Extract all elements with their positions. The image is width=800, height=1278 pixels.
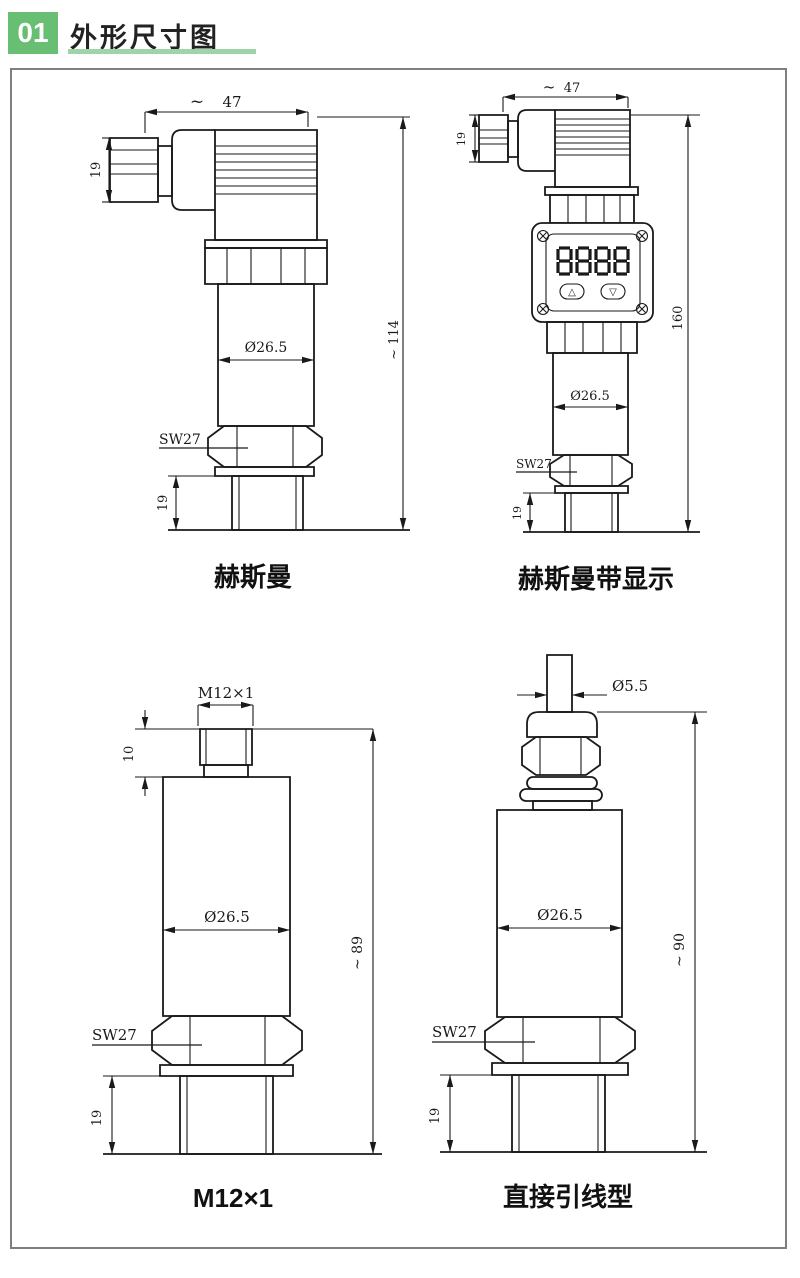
- d2-thread-text: 19: [511, 506, 524, 520]
- d2-housing: [518, 110, 630, 187]
- d1-dim-total-height: ~ 114: [317, 117, 410, 530]
- d3-wrench-text: SW27: [92, 1026, 137, 1044]
- d3-dim-diameter: Ø26.5: [163, 908, 290, 930]
- d2-wrench-note: SW27: [516, 457, 577, 472]
- d3-caption: M12×1: [193, 1183, 273, 1213]
- d2-dim-connector: 19: [455, 115, 479, 162]
- d2-dim-diameter: Ø26.5: [553, 389, 628, 407]
- d2-dim-width: ~ 47: [503, 78, 628, 112]
- d3-thread-text: 19: [90, 1110, 105, 1127]
- d1-wrench-text: SW27: [159, 432, 201, 448]
- d2-body: [553, 353, 628, 455]
- d2-diameter-text: Ø26.5: [570, 389, 610, 404]
- d2-dim-total-height: 160: [630, 115, 700, 532]
- d3-hex-nut: [152, 1016, 302, 1065]
- d3-dim-thread-spec: M12×1: [198, 684, 255, 726]
- d4-total-height-text: ~ 90: [672, 933, 688, 967]
- d1-hex-nut: [208, 426, 322, 467]
- d3-dim-connector: 10: [122, 710, 163, 796]
- d4-wrench-note: SW27: [432, 1023, 535, 1042]
- drawing-cable: Ø5.5 Ø26.5: [428, 655, 707, 1212]
- d3-dim-thread: 19: [90, 1076, 180, 1154]
- d2-hex-nut: [550, 455, 632, 486]
- drawing-hirschmann-display: △ ▽: [455, 78, 700, 594]
- d1-ribs: [215, 146, 317, 194]
- d1-approx-text: ~: [190, 92, 204, 112]
- d3-total-height-text: ~ 89: [350, 936, 366, 970]
- d2-display-module: △ ▽: [532, 223, 653, 322]
- d1-thread-text: 19: [156, 495, 171, 512]
- d4-caption: 直接引线型: [503, 1182, 633, 1212]
- d4-dim-thread: 19: [428, 1075, 512, 1152]
- d1-connector-text: 19: [89, 162, 104, 179]
- d4-thread-stud: [512, 1075, 605, 1152]
- d1-wrench-note: SW27: [159, 432, 248, 448]
- d2-washer: [555, 486, 628, 493]
- d1-width-text: 47: [222, 93, 241, 111]
- drawing-m12: M12×1 10 Ø26.5: [90, 684, 382, 1213]
- d2-ribs: [555, 119, 630, 155]
- d1-total-height-text: ~ 114: [387, 320, 402, 360]
- d2-dim-thread: 19: [511, 493, 565, 532]
- d1-washer: [215, 467, 314, 476]
- d2-button-down-glyph: ▽: [609, 287, 617, 298]
- d4-hex-nut: [485, 1017, 635, 1063]
- d3-washer: [160, 1065, 293, 1076]
- d1-dim-width: ~ 47: [145, 92, 308, 133]
- d2-total-height-text: 160: [671, 306, 686, 331]
- d4-cable-text: Ø5.5: [612, 677, 648, 695]
- d1-collar: [205, 240, 327, 284]
- d4-washer: [492, 1063, 628, 1075]
- d1-dim-diameter: Ø26.5: [218, 340, 314, 360]
- d4-dim-diameter: Ø26.5: [497, 906, 622, 928]
- d2-collar-bottom: [547, 322, 637, 353]
- d1-dim-connector: 19: [89, 138, 113, 202]
- d4-dim-cable: Ø5.5: [517, 677, 648, 695]
- d1-plug: [110, 138, 172, 202]
- d1-caption: 赫斯曼: [214, 562, 292, 592]
- d3-wrench-note: SW27: [92, 1026, 202, 1045]
- d3-body: [163, 777, 290, 1016]
- dimension-drawing-canvas: ~ 47 19 Ø26.5 ~ 114 19 SW27: [0, 0, 800, 1278]
- d1-dim-thread: 19: [156, 476, 232, 530]
- d2-button-up-glyph: △: [568, 287, 576, 298]
- d3-plug: [200, 729, 252, 777]
- d3-connector-text: 10: [122, 746, 137, 763]
- d2-collar-top: [545, 187, 638, 223]
- d3-diameter-text: Ø26.5: [204, 908, 250, 926]
- d2-wrench-text: SW27: [516, 457, 552, 471]
- d2-plug: [479, 115, 518, 162]
- d4-dim-total-height: ~ 90: [597, 712, 707, 1152]
- d1-housing: [172, 130, 317, 240]
- d4-thread-text: 19: [428, 1108, 443, 1125]
- d3-thread-spec-text: M12×1: [198, 684, 255, 702]
- d2-caption: 赫斯曼带显示: [518, 564, 674, 594]
- d2-connector-text: 19: [455, 132, 468, 146]
- d2-width-text: 47: [564, 81, 581, 96]
- d2-thread-stud: [565, 493, 618, 532]
- d3-dim-total-height: ~ 89: [350, 729, 373, 1154]
- d3-thread-stud: [180, 1076, 273, 1154]
- d1-diameter-text: Ø26.5: [245, 340, 288, 356]
- d1-thread-stud: [232, 476, 303, 530]
- d4-cable: [547, 655, 572, 712]
- d4-diameter-text: Ø26.5: [537, 906, 583, 924]
- drawing-hirschmann: ~ 47 19 Ø26.5 ~ 114 19 SW27: [89, 92, 410, 592]
- d2-approx-text: ~: [543, 78, 556, 96]
- d4-wrench-text: SW27: [432, 1023, 477, 1041]
- d4-cable-gland: [520, 712, 602, 810]
